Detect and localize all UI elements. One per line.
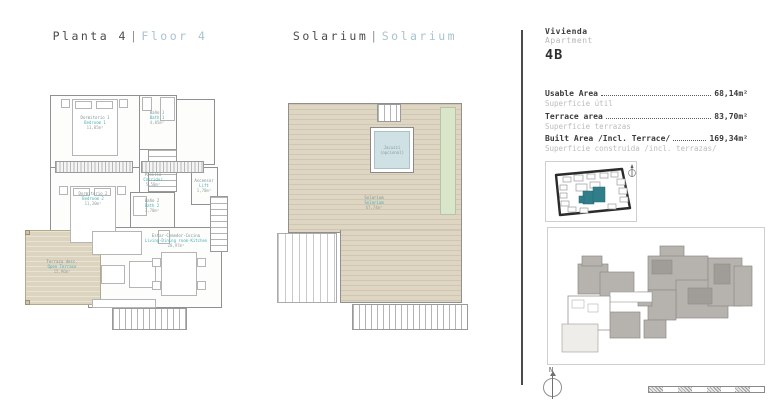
usable-area-row: Usable Area 68,14m² bbox=[545, 89, 748, 98]
label-solarium: Solarium Solarium 67,74m² bbox=[364, 195, 383, 211]
label-jacuzzi: Jacuzzi (opcional) bbox=[380, 145, 404, 155]
bed1-pillow bbox=[96, 101, 113, 109]
vivienda-label: Vivienda bbox=[545, 27, 593, 36]
site-map-box bbox=[545, 161, 637, 222]
label-corridor: Pasillo Corridor 5,50m² bbox=[143, 172, 162, 188]
label-bath1-area: 4,05m² bbox=[150, 121, 164, 126]
bed1-pillow bbox=[75, 101, 92, 109]
terrace-area-value: 83,70m² bbox=[714, 112, 748, 121]
apartment-number: 4B bbox=[545, 47, 593, 63]
brochure-page: Planta 4|Floor 4 Dormitorio 1 Bedroom 1 … bbox=[0, 0, 768, 403]
nightstand bbox=[59, 186, 68, 195]
solarium-top-stairs bbox=[377, 104, 401, 122]
built-area-value: 169,34m² bbox=[709, 134, 748, 143]
nightstand bbox=[117, 186, 126, 195]
dot-leader bbox=[601, 95, 711, 96]
wardrobe bbox=[55, 161, 133, 173]
built-area-label: Built Area /Incl. Terrace/ bbox=[545, 134, 670, 143]
scale-segment bbox=[663, 387, 677, 392]
key-plan-highlight-unit bbox=[562, 296, 610, 352]
north-arrow-head bbox=[550, 371, 556, 376]
usable-area-sublabel: Superficie útil bbox=[545, 99, 748, 108]
scale-segment bbox=[707, 387, 721, 392]
solarium-deck-lower bbox=[340, 230, 462, 303]
label-open-terrace: Terraza desc. Open Terrace 15,96m² bbox=[46, 259, 77, 275]
terrace-area-label: Terrace area bbox=[545, 112, 603, 121]
apartment-id-block: Vivienda Apartment 4B bbox=[545, 27, 593, 63]
coffee-table bbox=[101, 265, 125, 284]
scale-segment bbox=[678, 387, 692, 392]
solarium-bottom-stairs bbox=[352, 304, 468, 330]
label-bedroom1: Dormitorio 1 Bedroom 1 11,05m² bbox=[81, 115, 110, 131]
dot-leader bbox=[673, 140, 706, 141]
label-bedroom2: Dormitorio 2 Bedroom 2 11,30m² bbox=[79, 191, 108, 207]
scale-bar bbox=[648, 386, 765, 393]
usable-area-value: 68,14m² bbox=[714, 89, 748, 98]
wardrobe bbox=[141, 161, 204, 173]
nightstand bbox=[119, 99, 128, 108]
key-plan-box bbox=[547, 227, 765, 365]
built-area-sublabel: Superficie construida /incl. terrazas/ bbox=[545, 144, 748, 153]
chair bbox=[152, 281, 161, 290]
scale-segment bbox=[692, 387, 706, 392]
room-closet bbox=[176, 99, 215, 165]
floor-title-en: Floor 4 bbox=[141, 29, 207, 43]
solarium-title-en: Solarium bbox=[382, 29, 457, 43]
scale-segment bbox=[735, 387, 749, 392]
apartment-label: Apartment bbox=[545, 36, 593, 45]
terrace-area-row: Terrace area 83,70m² bbox=[545, 112, 748, 121]
chair bbox=[197, 258, 206, 267]
label-bedroom1-area: 11,05m² bbox=[81, 126, 110, 131]
terrace-post bbox=[25, 230, 30, 235]
chair bbox=[152, 258, 161, 267]
vertical-divider bbox=[521, 30, 523, 385]
sofa bbox=[92, 231, 142, 255]
label-living-area: 28,97m² bbox=[145, 244, 208, 249]
solarium-title-separator: | bbox=[368, 29, 381, 43]
areas-block: Usable Area 68,14m² Superficie útil Terr… bbox=[545, 89, 748, 157]
label-bath1: Baño 1 Bath 1 4,05m² bbox=[150, 110, 164, 126]
dot-leader bbox=[606, 118, 711, 119]
floor-title-separator: | bbox=[128, 29, 141, 43]
label-bath2-area: 3,70m² bbox=[145, 209, 159, 214]
label-lift-area: 1,70m² bbox=[194, 189, 213, 194]
label-open-terrace-area: 15,96m² bbox=[46, 270, 77, 275]
label-bedroom2-area: 11,30m² bbox=[79, 202, 108, 207]
exterior-stairs-right bbox=[210, 196, 228, 252]
kitchen-counter bbox=[92, 299, 156, 308]
terrace-post bbox=[25, 300, 30, 305]
solarium-title: Solarium|Solarium bbox=[275, 29, 475, 43]
floor-title-es: Planta 4 bbox=[53, 29, 128, 43]
label-living: Estar-Comedor-Cocina Living-Dining room-… bbox=[145, 233, 208, 249]
scale-segment bbox=[750, 387, 764, 392]
bottom-stairs bbox=[112, 308, 187, 330]
label-corridor-area: 5,50m² bbox=[143, 183, 162, 188]
mini-north-icon bbox=[629, 164, 636, 177]
planter-strip bbox=[440, 107, 456, 215]
solarium-title-es: Solarium bbox=[293, 29, 368, 43]
label-solarium-area: 67,74m² bbox=[364, 206, 383, 211]
scale-segment bbox=[721, 387, 735, 392]
dining-table bbox=[161, 252, 197, 296]
scale-segment bbox=[649, 387, 663, 392]
pergola-roof bbox=[277, 233, 337, 303]
north-arrow-needle bbox=[552, 375, 553, 399]
chair bbox=[197, 281, 206, 290]
nightstand bbox=[61, 99, 70, 108]
label-bath2: Baño 2 Bath 2 3,70m² bbox=[145, 198, 159, 214]
usable-area-label: Usable Area bbox=[545, 89, 598, 98]
floor-title: Planta 4|Floor 4 bbox=[30, 29, 230, 43]
site-plan-map bbox=[546, 162, 638, 222]
label-lift: Ascensor Lift 1,70m² bbox=[194, 178, 213, 194]
label-jacuzzi-line2: (opcional) bbox=[380, 150, 404, 155]
toilet1 bbox=[142, 97, 152, 111]
built-area-row: Built Area /Incl. Terrace/ 169,34m² bbox=[545, 134, 748, 143]
key-plan-map bbox=[548, 228, 766, 365]
terrace-area-sublabel: Superficie terrazas bbox=[545, 122, 748, 131]
